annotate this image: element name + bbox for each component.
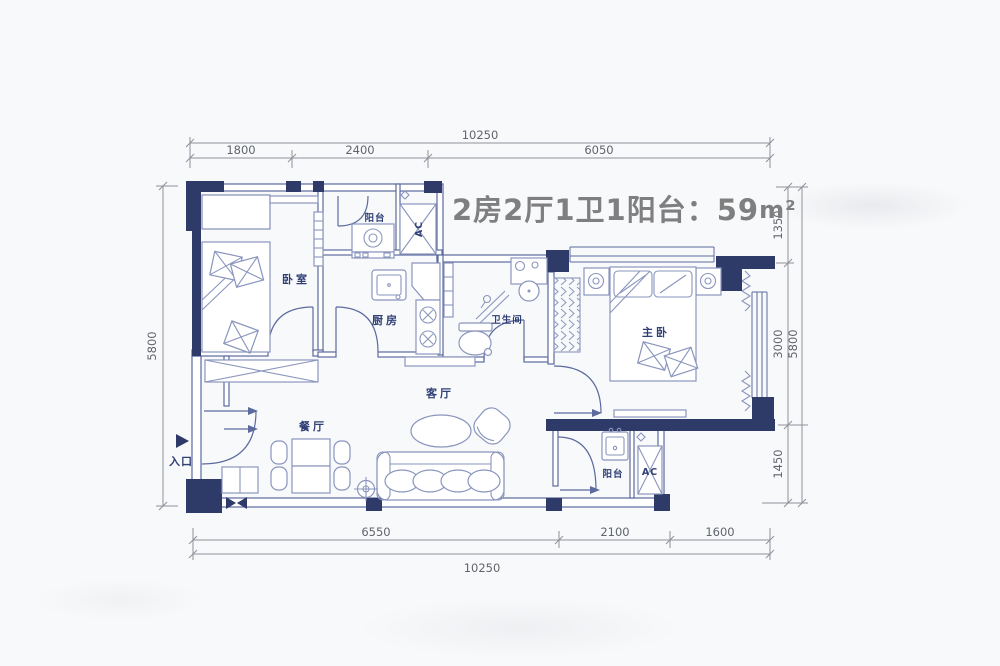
title-text: 2房2厅1卫1阳台：59 [452,193,759,227]
dim-top-segment-3: 6050 [584,143,613,157]
curtain-icon [742,271,750,411]
master-bedroom-door [554,366,602,417]
coffee-table-icon [411,415,471,447]
balcony-sink-icon [602,428,628,460]
dim-right-total: 5800 [786,329,800,358]
sofa-icon [377,452,504,500]
floor-plan-svg: 10250 1800 2400 6050 6550 2100 1600 1025… [0,0,1000,666]
dining-table-icon [292,439,330,466]
room-label-bathroom: 卫生间 [491,314,523,326]
balcony-bottom-door [558,437,600,494]
toilet-icon [459,323,492,356]
dim-top-segment-2: 2400 [345,143,374,157]
master-bedroom-furniture [554,267,721,417]
dim-right-segment-2: 3000 [771,329,785,358]
room-label-dining-room: 餐厅 [298,419,327,433]
chair-icon [334,441,350,464]
room-label-bedroom: 卧室 [282,272,310,286]
room-label-kitchen: 厨房 [372,313,400,327]
tv-bench-icon [614,410,686,417]
shelf-icon [270,196,318,203]
washbasin-icon [511,258,547,301]
dim-top-segment-1: 1800 [226,143,255,157]
bathroom-furniture [444,258,547,356]
chair-icon [271,441,287,464]
dim-right-segment-3: 1450 [771,449,785,478]
tv-cabinet-icon [405,357,475,366]
double-bed-icon [610,267,698,381]
entry-door [202,407,258,464]
room-label-balcony-bottom: 阳台 [602,468,623,480]
dining-room-furniture [271,439,350,493]
room-label-living-room: 客厅 [425,386,454,400]
bed-icon [202,242,270,353]
master-top-bay-window [570,247,714,262]
floor-lamp-icon [354,477,378,501]
diamond-icon [637,433,645,441]
entrance-arrow-icon [176,434,189,448]
title-unit: m² [759,196,797,224]
room-label-master-bedroom: 主卧 [642,325,670,339]
page-title: 2房2厅1卫1阳台：59m² [452,193,797,227]
master-right-window [752,292,767,398]
diamond-icon [401,191,409,199]
room-label-entrance: 入口 [169,455,193,468]
wardrobe-icon [554,278,580,352]
kitchen-sink-icon [372,270,406,300]
nightstand-icon [696,268,721,295]
drying-rack-icon [314,212,323,266]
room-label-balcony-top: 阳台 [364,212,385,224]
chair-icon [334,467,350,490]
dim-bottom-segment-2: 2100 [600,525,629,539]
dim-top-total: 10250 [462,128,499,142]
shelf-strip-icon [444,263,453,317]
nightstand-icon [584,268,609,295]
dining-table-icon [292,466,330,493]
wardrobe-icon [202,195,270,229]
living-room-furniture [354,357,515,501]
armchair-icon [469,403,514,448]
chair-icon [271,467,287,490]
dim-left-total: 5800 [145,331,159,360]
dim-bottom-total: 10250 [464,561,501,575]
room-label-ac-bottom: AC [642,467,658,478]
dim-bottom-segment-1: 6550 [361,525,390,539]
bedroom-door [268,307,313,352]
dim-bottom-segment-3: 1600 [705,525,734,539]
kitchen-furniture [372,263,440,354]
stove-icon [416,300,440,354]
room-label-ac-top: AC [414,221,425,237]
washing-machine-icon [352,224,394,258]
cabinet-icon [205,360,318,382]
floor-plan-page: 10250 1800 2400 6050 6550 2100 1600 1025… [0,0,1000,666]
counter-icon [412,263,440,300]
